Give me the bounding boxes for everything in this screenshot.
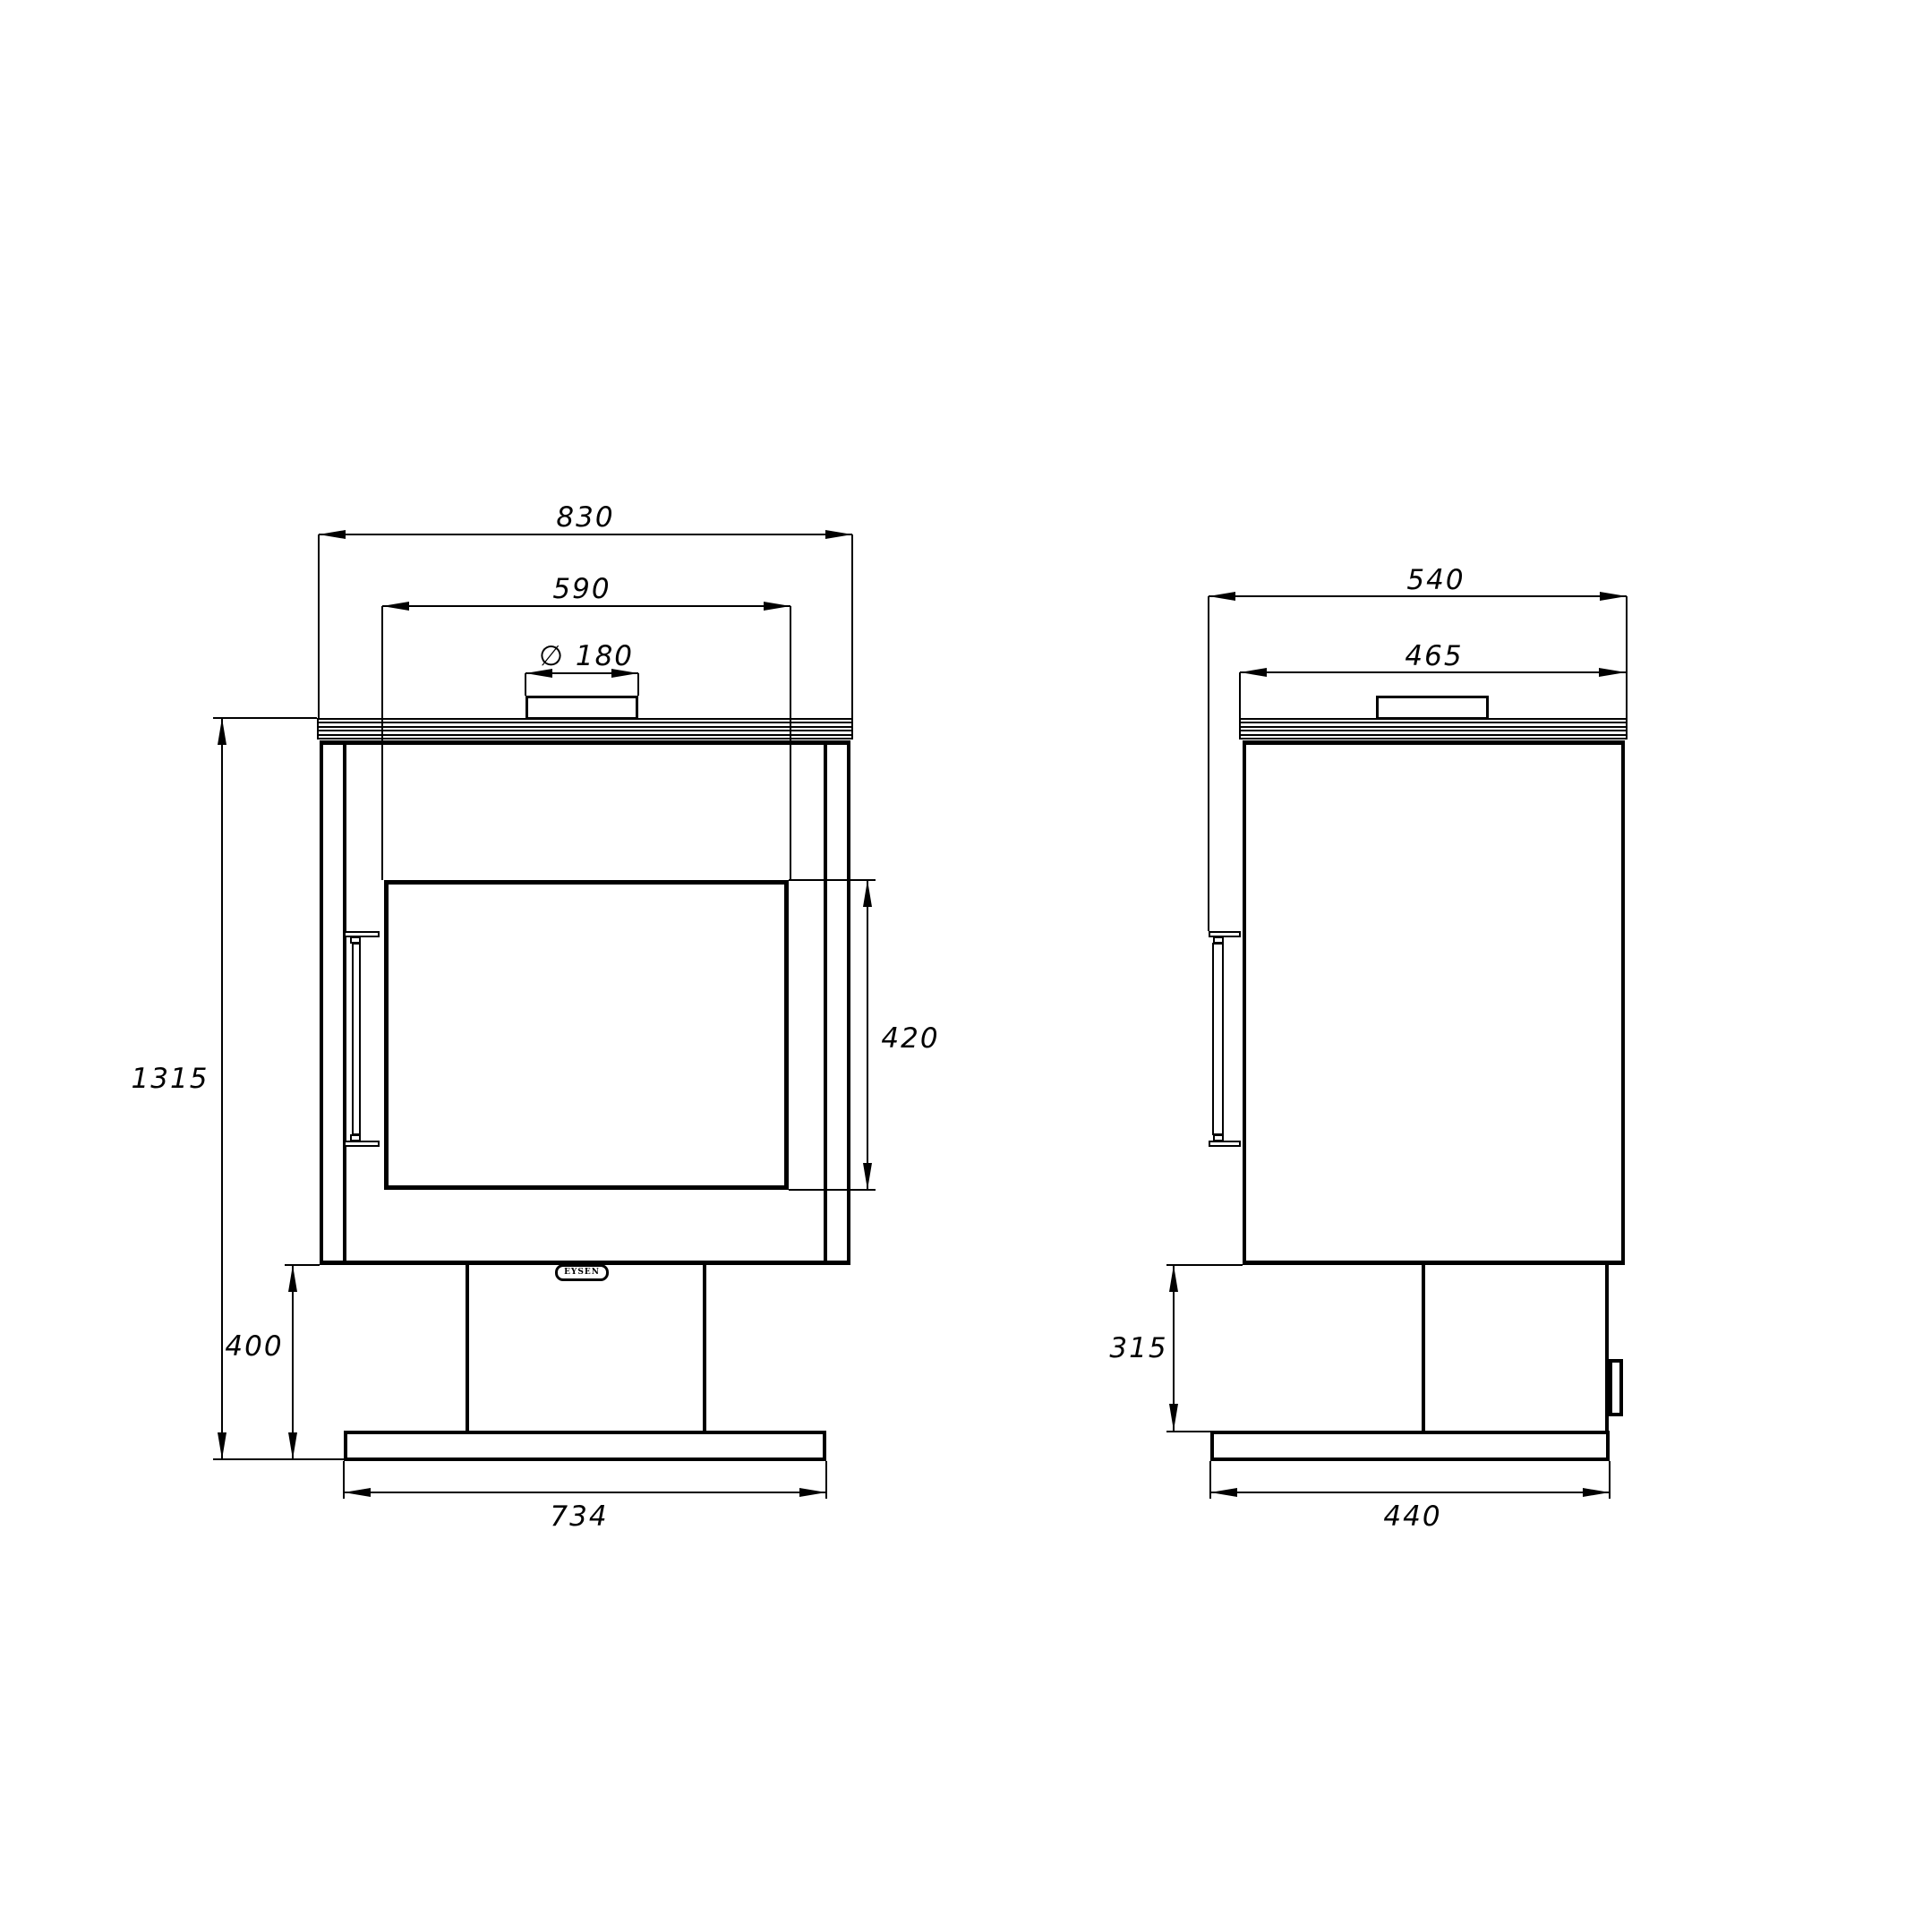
side-top-plate-line-6 (1239, 738, 1628, 739)
front-dim-590-arrow-left (382, 602, 409, 611)
front-dim-830-ext-right (851, 534, 853, 718)
side-dim-440-arrow-right (1583, 1488, 1610, 1497)
side-top-plate-front-edge (1239, 718, 1241, 739)
brand-badge: EYSEN (555, 1264, 609, 1281)
front-dim-420-arrow-bottom (863, 1163, 872, 1190)
front-handle-shaft (352, 943, 361, 1135)
side-body-top-edge (1243, 740, 1625, 745)
front-dim-590-label: 590 (519, 573, 645, 605)
front-body-left-edge (320, 745, 323, 1265)
side-body-back-edge (1621, 745, 1625, 1265)
side-dim-315-label: 315 (1076, 1332, 1201, 1364)
front-dim-400-arrow-top (288, 1265, 297, 1292)
front-top-plate-right-edge (851, 718, 853, 739)
front-dim-590-ext-left (381, 606, 383, 880)
side-dim-465-arrow-left (1240, 668, 1267, 677)
side-ash-lever (1609, 1359, 1623, 1416)
front-top-plate-line-5 (317, 734, 853, 736)
front-top-plate-line-2 (317, 722, 853, 723)
front-dim-420-arrow-top (863, 880, 872, 907)
front-dim-830-arrow-left (319, 530, 346, 539)
front-flue-collar (525, 696, 638, 720)
side-top-plate-back-edge (1626, 718, 1628, 739)
technical-drawing-canvas: EYSEN 830 590 ∅ 180 420 (0, 0, 1931, 1932)
front-dim-180-label: ∅ 180 (524, 640, 649, 672)
side-dim-465-ext-front (1239, 672, 1241, 718)
side-handle-shaft (1212, 943, 1224, 1135)
side-dim-440-line (1210, 1492, 1610, 1493)
front-top-plate-line-4 (317, 730, 853, 731)
front-dim-830-arrow-right (825, 530, 852, 539)
side-dim-540-label: 540 (1373, 564, 1499, 596)
front-dim-734-arrow-left (344, 1488, 371, 1497)
side-dim-440-arrow-left (1210, 1488, 1237, 1497)
front-dim-bottom-ext (213, 1458, 344, 1460)
side-dim-465-arrow-right (1599, 668, 1626, 677)
front-dim-1315-label: 1315 (107, 1063, 233, 1095)
front-dim-830-line (319, 534, 852, 535)
front-dim-1315-arrow-bottom (218, 1432, 226, 1459)
side-dim-540-arrow-right (1600, 592, 1627, 601)
front-dim-590-arrow-right (764, 602, 790, 611)
side-body-bottom-edge (1243, 1261, 1625, 1265)
side-top-plate-line-5 (1239, 734, 1628, 736)
front-dim-590-line (382, 605, 790, 607)
side-top-plate-line-2 (1239, 722, 1628, 723)
brand-badge-label: EYSEN (564, 1269, 600, 1277)
front-door-glass (384, 880, 789, 1190)
side-top-plate-line-4 (1239, 730, 1628, 731)
front-dim-830-ext-left (318, 534, 320, 718)
front-body-right-edge (847, 745, 850, 1265)
front-dim-420-label: 420 (848, 1022, 973, 1055)
side-flue-collar (1376, 696, 1489, 720)
side-dim-540-ext-front (1208, 596, 1209, 931)
side-dim-315-arrow-bottom (1169, 1404, 1178, 1431)
front-pedestal-right-edge (703, 1265, 706, 1431)
side-body-front-edge (1243, 745, 1246, 1265)
front-pedestal-left-edge (466, 1265, 469, 1431)
front-handle-bottom-bracket (344, 1141, 380, 1147)
front-dim-1315-ext-top (213, 717, 317, 719)
front-top-plate-line-6 (317, 738, 853, 739)
front-dim-400-label: 400 (192, 1330, 317, 1363)
front-dim-590-ext-right (790, 606, 791, 880)
side-dim-440-label: 440 (1350, 1500, 1475, 1533)
front-door-panel-left-line (343, 745, 346, 1261)
side-handle-bottom-bracket (1209, 1141, 1241, 1147)
side-dim-540-ext-back (1626, 596, 1628, 718)
front-top-plate-line-3 (317, 726, 853, 728)
side-dim-465-label: 465 (1371, 640, 1497, 672)
side-dim-315-arrow-top (1169, 1265, 1178, 1292)
front-dim-1315-arrow-top (218, 718, 226, 745)
front-door-panel-right-line (824, 745, 827, 1261)
side-top-plate-line-3 (1239, 726, 1628, 728)
front-base-plate (344, 1431, 826, 1461)
side-pedestal-front-edge (1422, 1265, 1425, 1431)
front-dim-400-arrow-bottom (288, 1432, 297, 1459)
side-dim-540-arrow-left (1209, 592, 1235, 601)
front-dim-734-label: 734 (517, 1500, 642, 1533)
side-dim-315-ext-bottom (1166, 1431, 1210, 1432)
side-base-plate (1210, 1431, 1610, 1461)
front-dim-830-label: 830 (523, 501, 648, 534)
front-handle-top-bracket (344, 931, 380, 937)
front-body-top-edge (320, 740, 850, 745)
front-top-plate-left-edge (317, 718, 319, 739)
front-dim-734-arrow-right (799, 1488, 826, 1497)
front-dim-734-line (344, 1492, 826, 1493)
